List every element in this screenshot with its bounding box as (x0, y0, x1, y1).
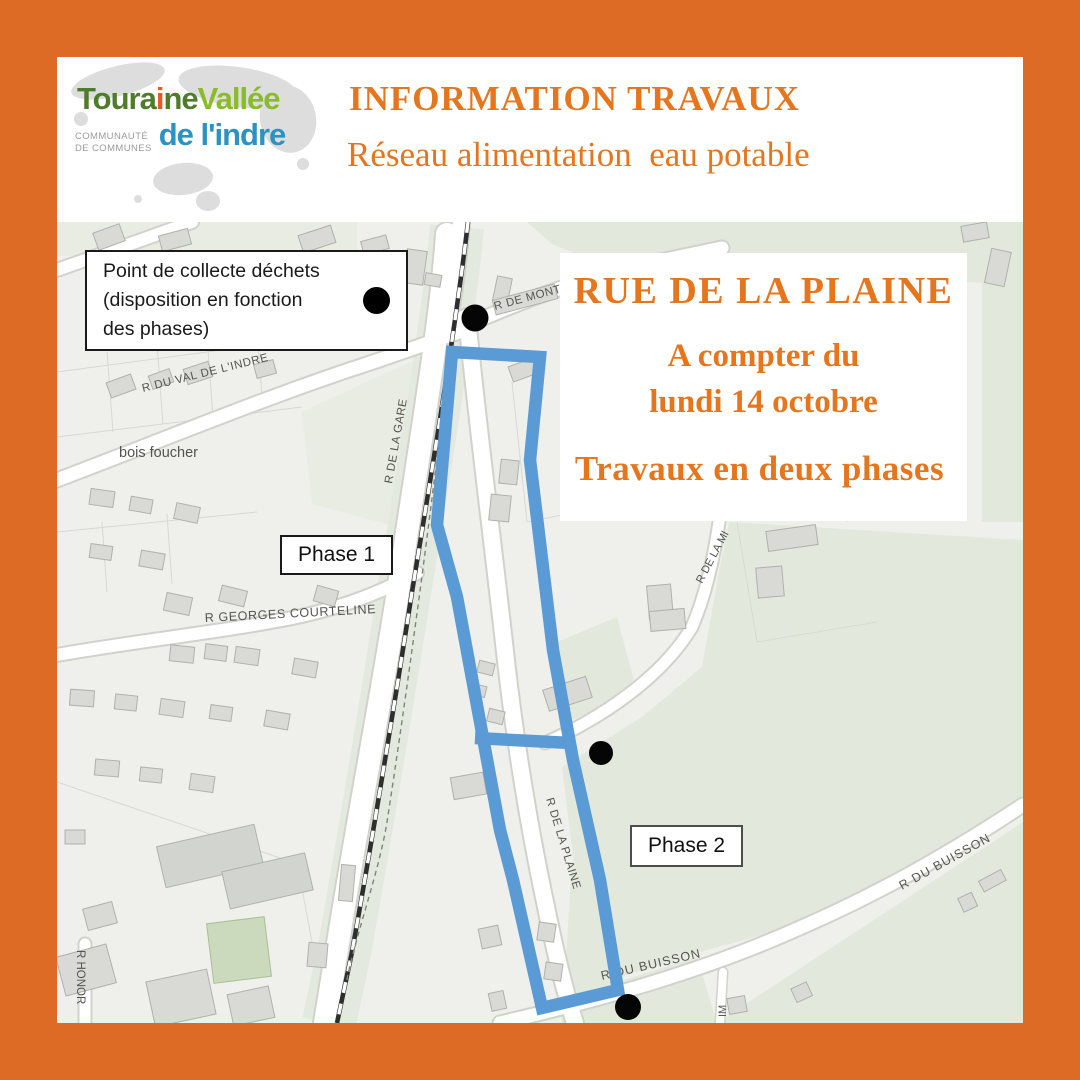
legend-text: Point de collecte déchets (disposition e… (103, 257, 363, 345)
announcement-street: RUE DE LA PLAINE (560, 269, 967, 313)
poster: { "logo": { "word1_pre": "Toura", "word1… (0, 0, 1080, 1080)
waste-collection-point-marker (589, 741, 613, 765)
header: TouraineVallée COMMUNAUTÉ DE COMMUNES de… (57, 57, 1023, 222)
street-label-impasse: IM (717, 1005, 729, 1017)
logo-subtext: COMMUNAUTÉ DE COMMUNES (75, 131, 152, 155)
street-label-r-honore: R HONOR (74, 950, 86, 1004)
logo-word-vallee: Vallée (198, 81, 280, 116)
logo-line1: TouraineVallée (77, 81, 280, 117)
logo-line2: COMMUNAUTÉ DE COMMUNES de l'indre (75, 117, 285, 155)
waste-collection-point-marker (615, 994, 641, 1020)
page-title: INFORMATION TRAVAUX (349, 79, 800, 119)
logo-word-indre: de l'indre (159, 117, 286, 153)
page-subtitle: Réseau alimentation eau potable (347, 135, 810, 175)
phase-1-label: Phase 1 (280, 535, 393, 575)
announcement-phases: Travaux en deux phases (552, 449, 967, 489)
map: R DE MONT R DU VAL DE L'INDRE bois fouch… (57, 222, 1023, 1023)
announcement-box: RUE DE LA PLAINE A compter du lundi 14 o… (560, 253, 967, 521)
waste-collection-point-marker (462, 305, 489, 332)
phase-2-label: Phase 2 (630, 825, 743, 867)
collection-point-legend-icon (363, 287, 390, 314)
phase-divider-line (475, 738, 571, 743)
logo: TouraineVallée COMMUNAUTÉ DE COMMUNES de… (63, 59, 323, 219)
announcement-date: A compter du lundi 14 octobre (560, 333, 967, 425)
place-label-bois-foucher: bois foucher (119, 445, 198, 461)
legend-box: Point de collecte déchets (disposition e… (85, 250, 408, 351)
logo-word-touraine: Touraine (77, 81, 198, 116)
